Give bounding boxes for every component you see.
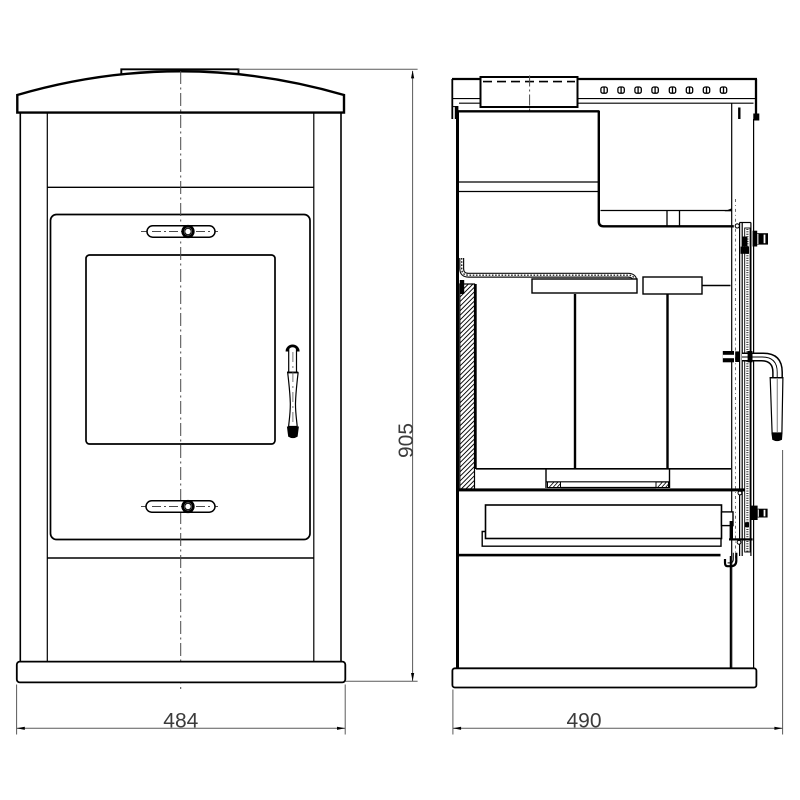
- svg-text:484: 484: [163, 710, 198, 733]
- svg-text:490: 490: [566, 710, 601, 733]
- svg-text:905: 905: [395, 423, 418, 458]
